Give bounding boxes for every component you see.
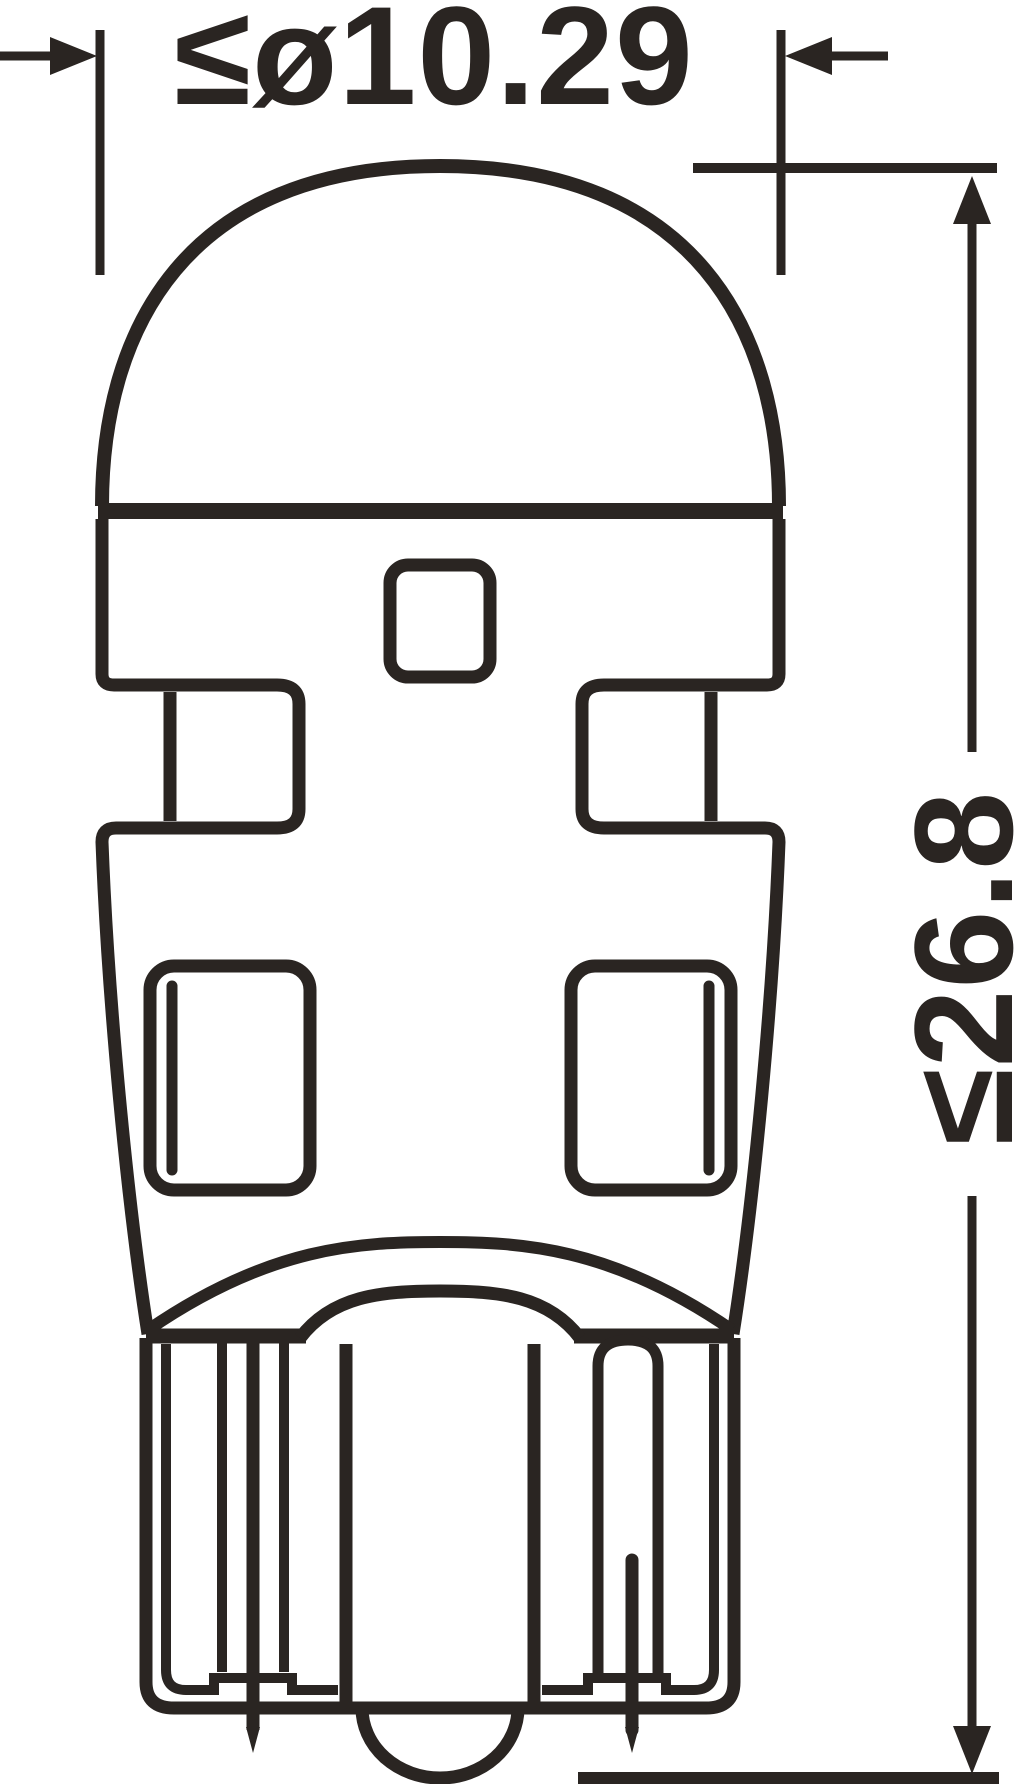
diameter-label: ≤ø10.29 [174,0,694,134]
bulb-dimension-diagram: ≤ø10.29 ≤26.8 [0,0,1024,1784]
wedge-base-outline [146,1338,734,1708]
bulb-dome [102,166,779,506]
silhouette-left [102,519,299,1334]
exhaust-tip-arc [362,1708,518,1778]
collar-arch-small [300,1291,580,1338]
lead-wire-left-tip [246,1727,260,1753]
lead-wire-right-tip [625,1727,639,1753]
diameter-dimension: ≤ø10.29 [0,0,888,275]
cap-window-notch [390,565,490,677]
height-label: ≤26.8 [885,791,1024,1145]
height-dimension: ≤26.8 [578,168,1024,1778]
technical-drawing: ≤ø10.29 ≤26.8 [0,0,1024,1784]
height-arrow-up-head [953,176,991,224]
diameter-arrow-right-head [785,37,832,75]
silhouette-right [582,519,779,1334]
height-arrow-down-head [953,1726,991,1774]
diameter-arrow-left-head [50,37,97,75]
bulb-outline [98,166,783,1778]
